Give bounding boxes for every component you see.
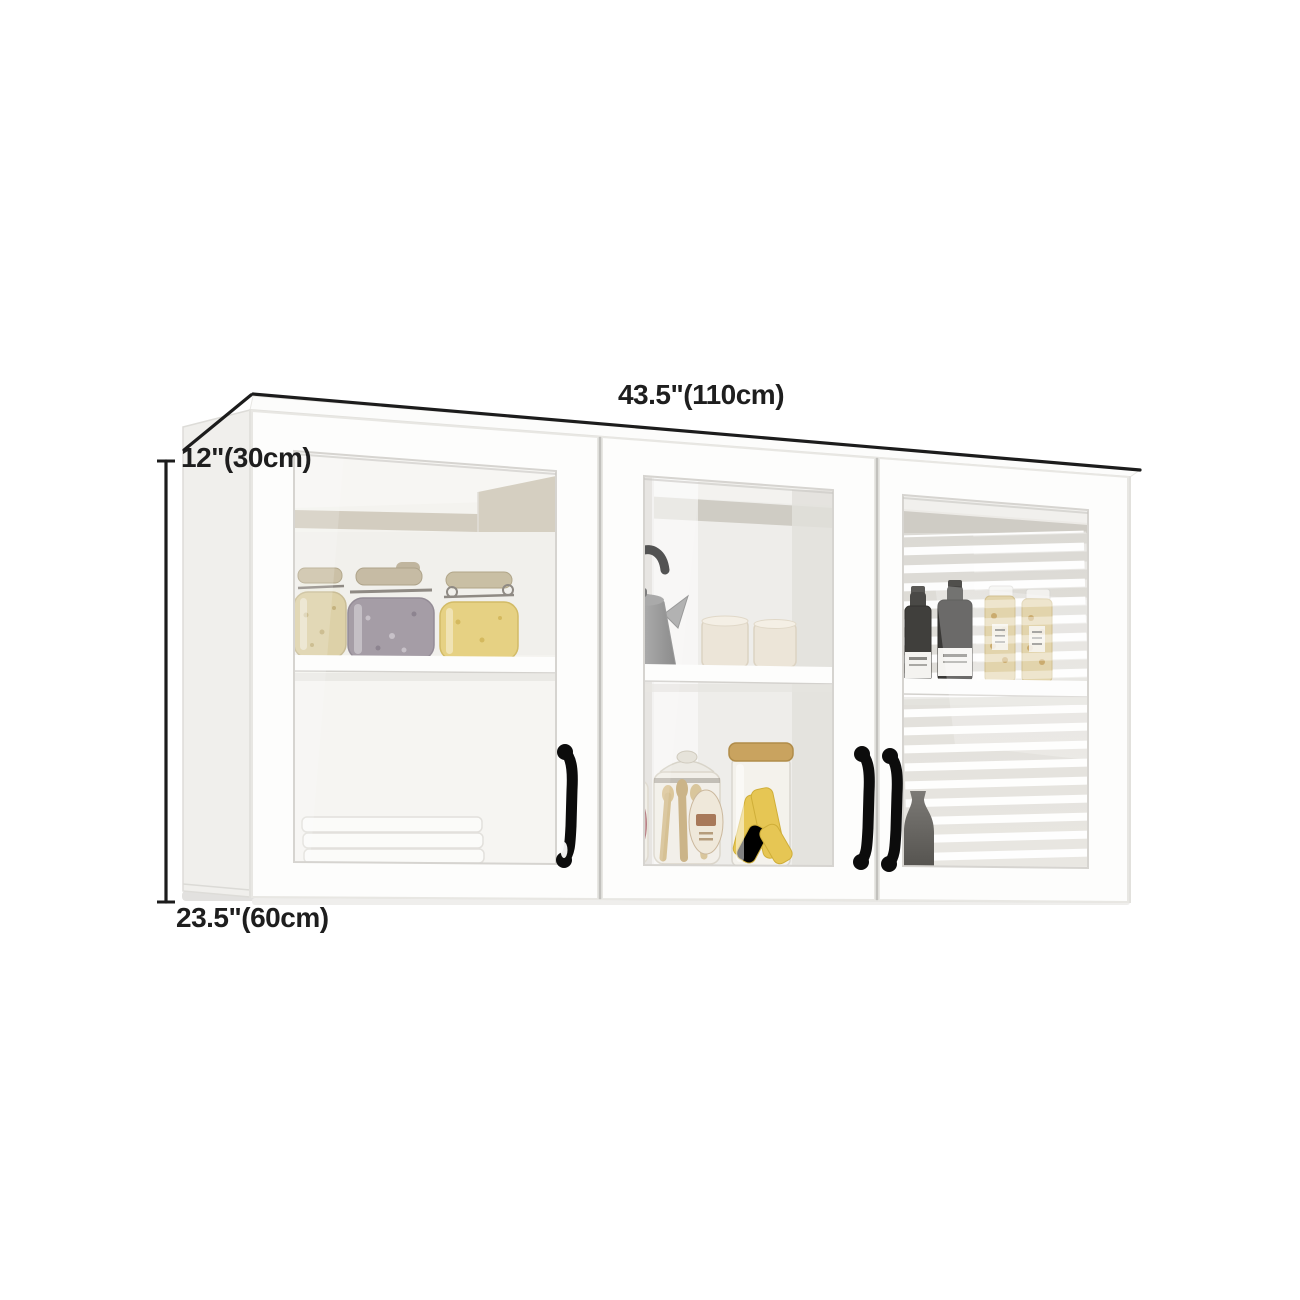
height-dimension-label: 23.5"(60cm) <box>176 902 329 934</box>
cabinet-side-panel <box>183 410 250 897</box>
storage-jar-yellow <box>440 572 518 660</box>
tray-stack <box>296 817 488 869</box>
compartment-right <box>899 495 1093 868</box>
handle-highlight <box>561 842 568 858</box>
depth-dimension-label: 12"(30cm) <box>181 442 311 474</box>
cork-lid <box>729 743 793 761</box>
storage-jar-gray <box>348 562 434 660</box>
dimension-line-height <box>157 461 175 902</box>
compartment-left <box>294 451 556 869</box>
product-dimension-diagram: 43.5"(110cm) 12"(30cm) 23.5"(60cm) <box>0 0 1300 1300</box>
pasta-jar <box>729 743 795 866</box>
shelf-left <box>294 655 556 673</box>
width-dimension-label: 43.5"(110cm) <box>600 379 802 411</box>
glass-wash <box>935 585 1088 760</box>
cabinet-illustration <box>0 0 1300 1300</box>
